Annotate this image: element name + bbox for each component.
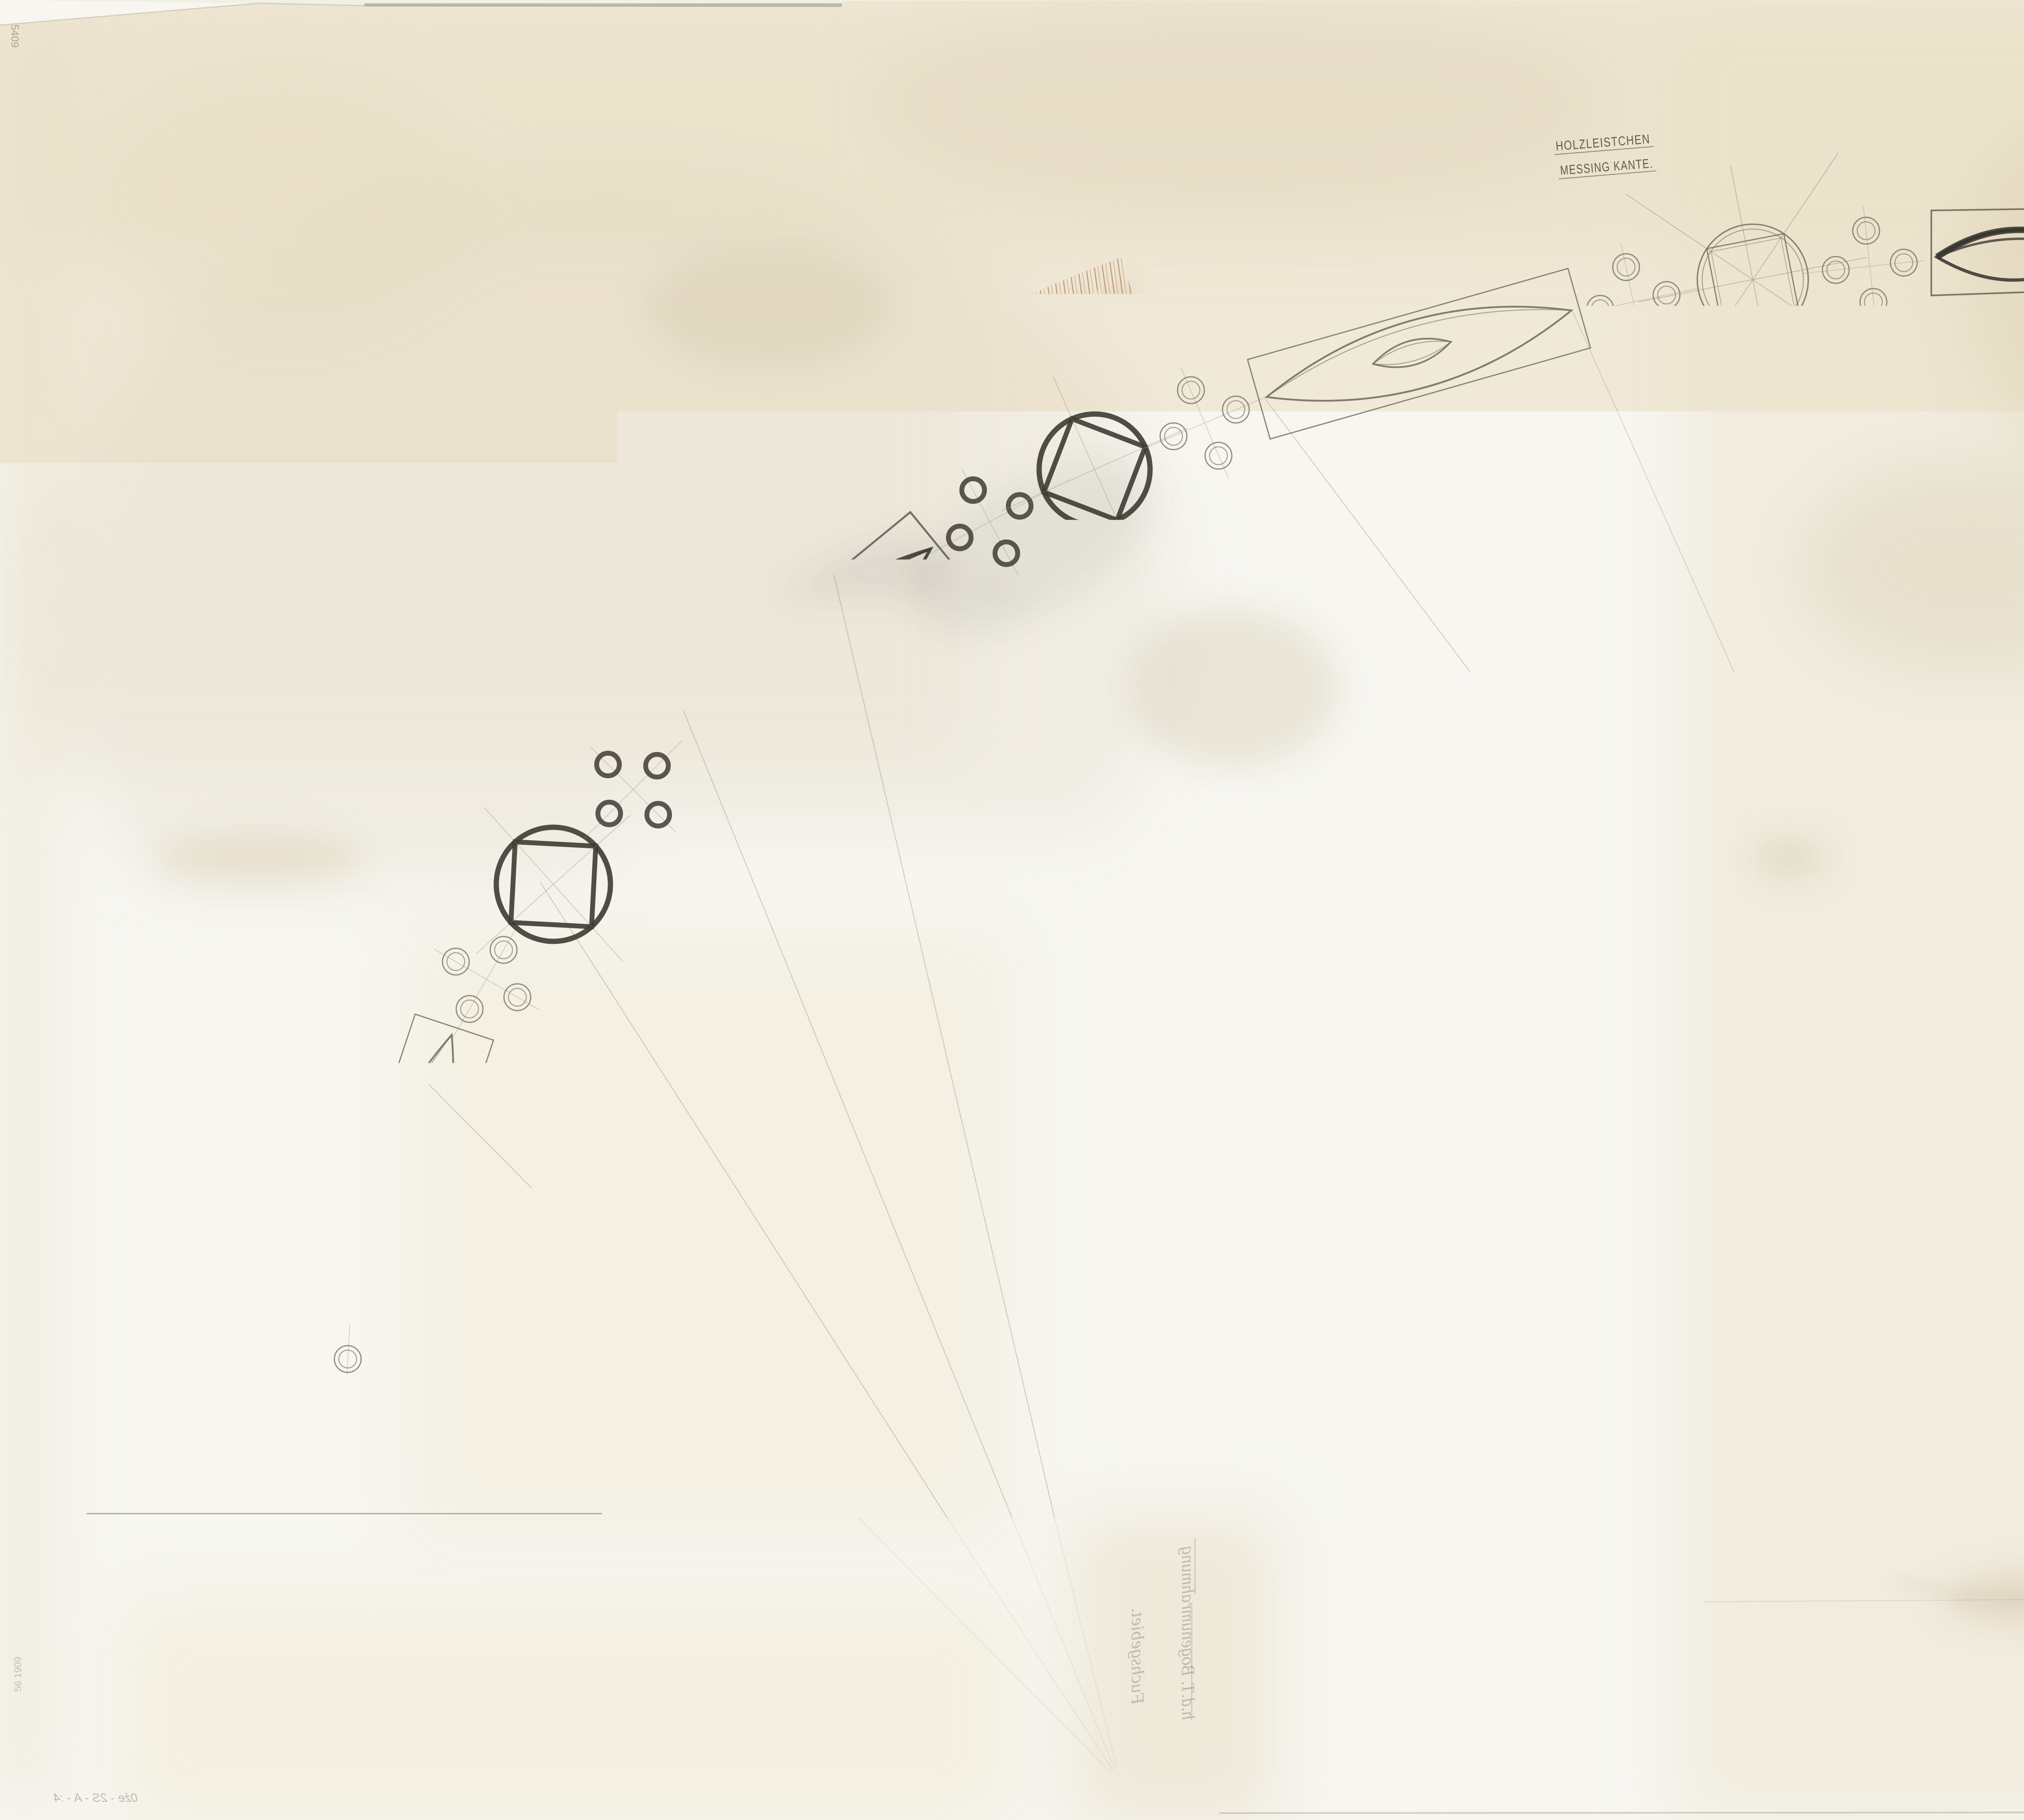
svg-text:SVD.ÖSTL. SPIELZIMMER: SVD.ÖSTL. SPIELZIMMER (1795, 471, 1969, 493)
svg-text:5409: 5409 (9, 24, 21, 48)
svg-text:Fuchsgebiet.: Fuchsgebiet. (1128, 1608, 1148, 1705)
svg-text:h.d.T. Bogenumrahmung: h.d.T. Bogenumrahmung (1178, 1546, 1199, 1720)
svg-text:1:1: 1:1 (1964, 497, 1991, 517)
svg-text:MÜNCHEN POLYTECHNIKUM.: MÜNCHEN POLYTECHNIKUM. (1821, 559, 1896, 565)
svg-text:BOGENVMRAHMVNG: BOGENVMRAHMVNG (1793, 496, 1958, 518)
svg-text:TEIL OBER D.KÄMPFERLINIE.: TEIL OBER D.KÄMPFERLINIE. (1806, 521, 2017, 543)
svg-text:KVRHAVS WIESBADEN: KVRHAVS WIESBADEN (1797, 445, 2016, 467)
svg-text:860: 860 (1867, 537, 1899, 558)
svg-text:K +2.65: K +2.65 (485, 1501, 561, 1525)
svg-text:56 1909: 56 1909 (13, 1656, 23, 1692)
